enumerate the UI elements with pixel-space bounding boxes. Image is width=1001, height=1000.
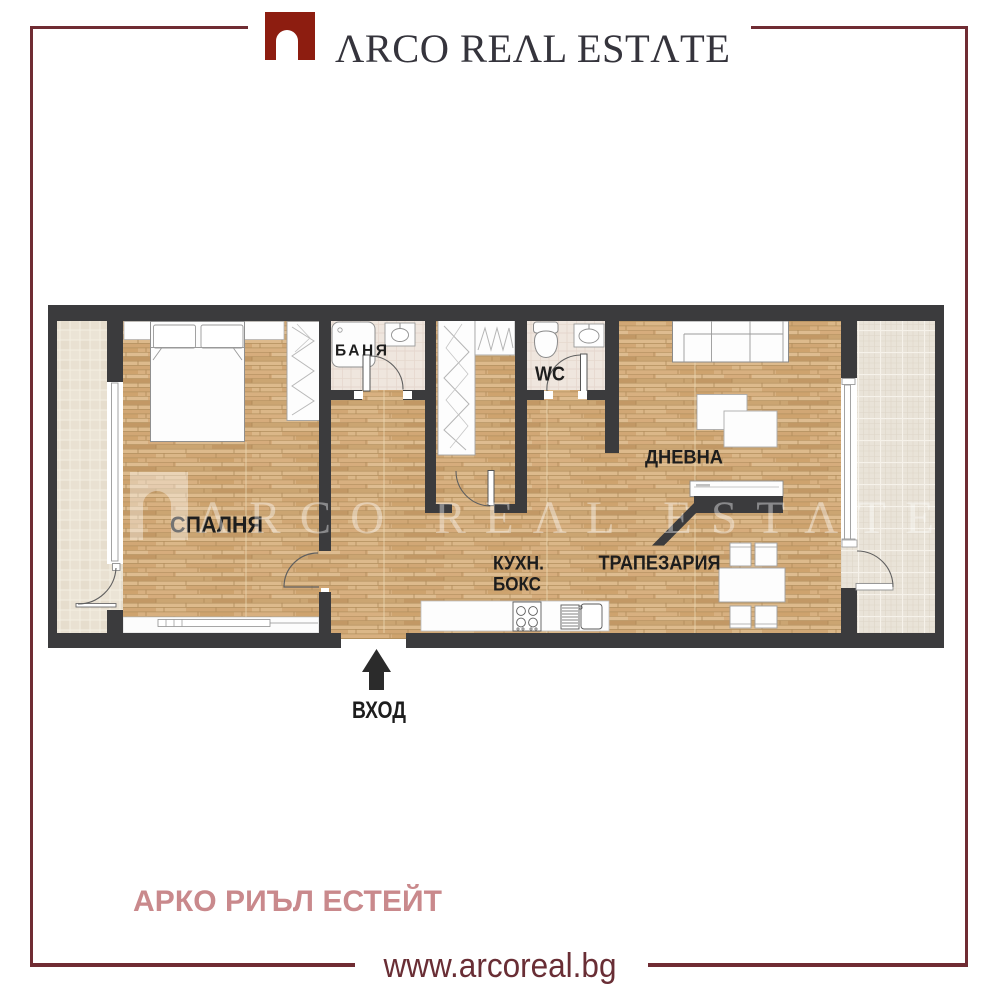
svg-text:ТРАПЕЗАРИЯ: ТРАПЕЗАРИЯ — [599, 553, 721, 575]
svg-text:ΛRCO REΛL ESTΛTE: ΛRCO REΛL ESTΛTE — [196, 492, 934, 544]
svg-text:ΛRCO REΛL ESTΛTE: ΛRCO REΛL ESTΛTE — [335, 26, 730, 71]
svg-text:АРКО РИЪЛ ЕСТЕЙТ: АРКО РИЪЛ ЕСТЕЙТ — [133, 884, 442, 918]
svg-text:www.arcoreal.bg: www.arcoreal.bg — [383, 947, 617, 985]
svg-text:ДНЕВНА: ДНЕВНА — [645, 448, 723, 469]
svg-text:КУХН.: КУХН. — [493, 554, 544, 575]
svg-text:БОКС: БОКС — [493, 575, 541, 596]
svg-text:ВХОД: ВХОД — [352, 697, 406, 724]
svg-text:WC: WC — [535, 364, 565, 386]
